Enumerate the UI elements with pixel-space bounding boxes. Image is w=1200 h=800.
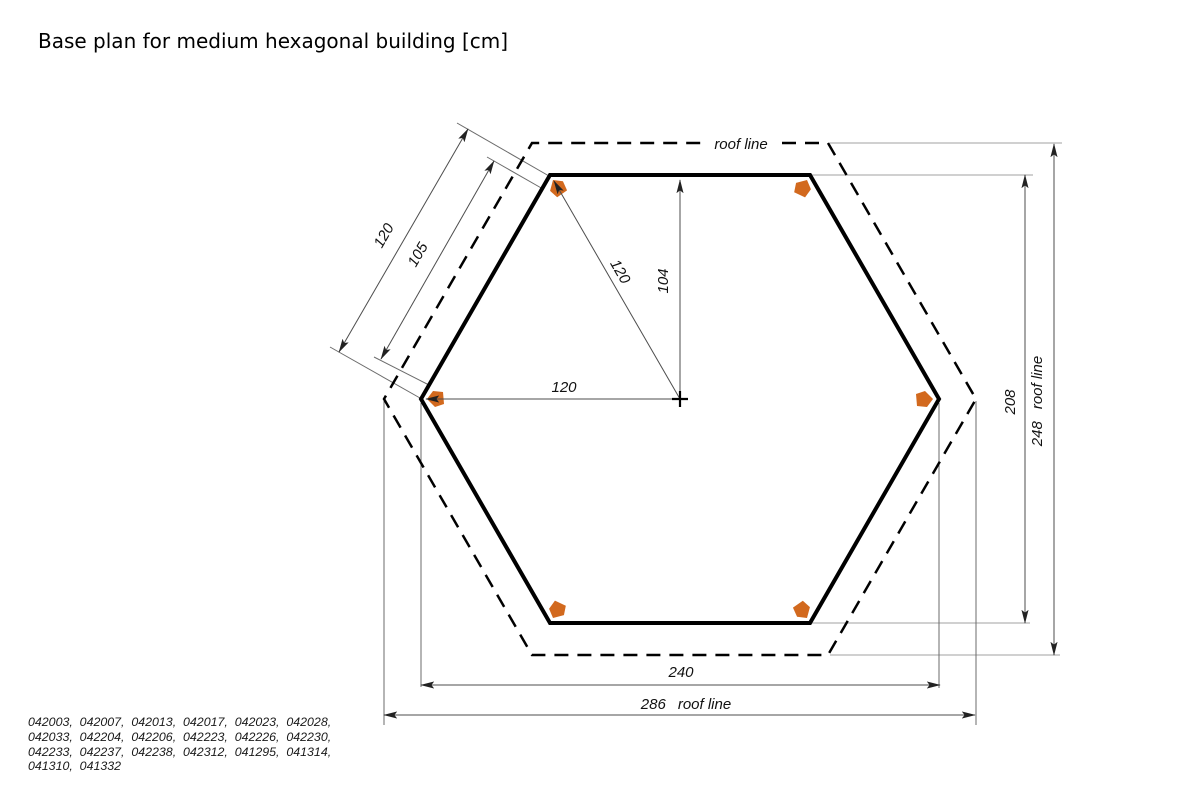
- base-width-label: 240: [667, 664, 694, 681]
- dimension-labels: roof line 120 105 120 104 120 240 286roo…: [370, 133, 1046, 713]
- roof-height-suffix: roof line: [1029, 356, 1046, 409]
- roof-line-label-top: roof line: [714, 136, 767, 153]
- roof-height-label: 248roof line: [1029, 356, 1046, 447]
- product-codes: 042003, 042007, 042013, 042017, 042023, …: [28, 715, 331, 774]
- product-codes-line: 042233, 042237, 042238, 042312, 041295, …: [28, 745, 331, 760]
- roof-width-suffix: roof line: [678, 696, 731, 713]
- roof-height-value: 248: [1029, 421, 1046, 448]
- half-width-label: 120: [551, 379, 577, 396]
- center-mark: [672, 391, 688, 407]
- radius-label: 120: [606, 257, 634, 288]
- roof-width-value: 286: [640, 696, 667, 713]
- base-plan-drawing: Base plan for medium hexagonal building …: [0, 0, 1200, 800]
- product-codes-line: 042033, 042204, 042206, 042223, 042226, …: [28, 730, 331, 745]
- extension-lines: [330, 123, 976, 725]
- dimension-lines: [339, 129, 1054, 715]
- inner-side-label: 105: [404, 239, 432, 270]
- corner-marker: [916, 391, 933, 407]
- height-label: 208: [1002, 389, 1019, 416]
- product-codes-line: 041310, 041332: [28, 759, 331, 774]
- apothem-label: 104: [655, 268, 672, 293]
- product-codes-line: 042003, 042007, 042013, 042017, 042023, …: [28, 715, 331, 730]
- side-length-label: 120: [370, 220, 398, 251]
- roof-width-label: 286roof line: [640, 696, 731, 713]
- plan-diagram: roof line 120 105 120 104 120 240 286roo…: [0, 0, 1200, 800]
